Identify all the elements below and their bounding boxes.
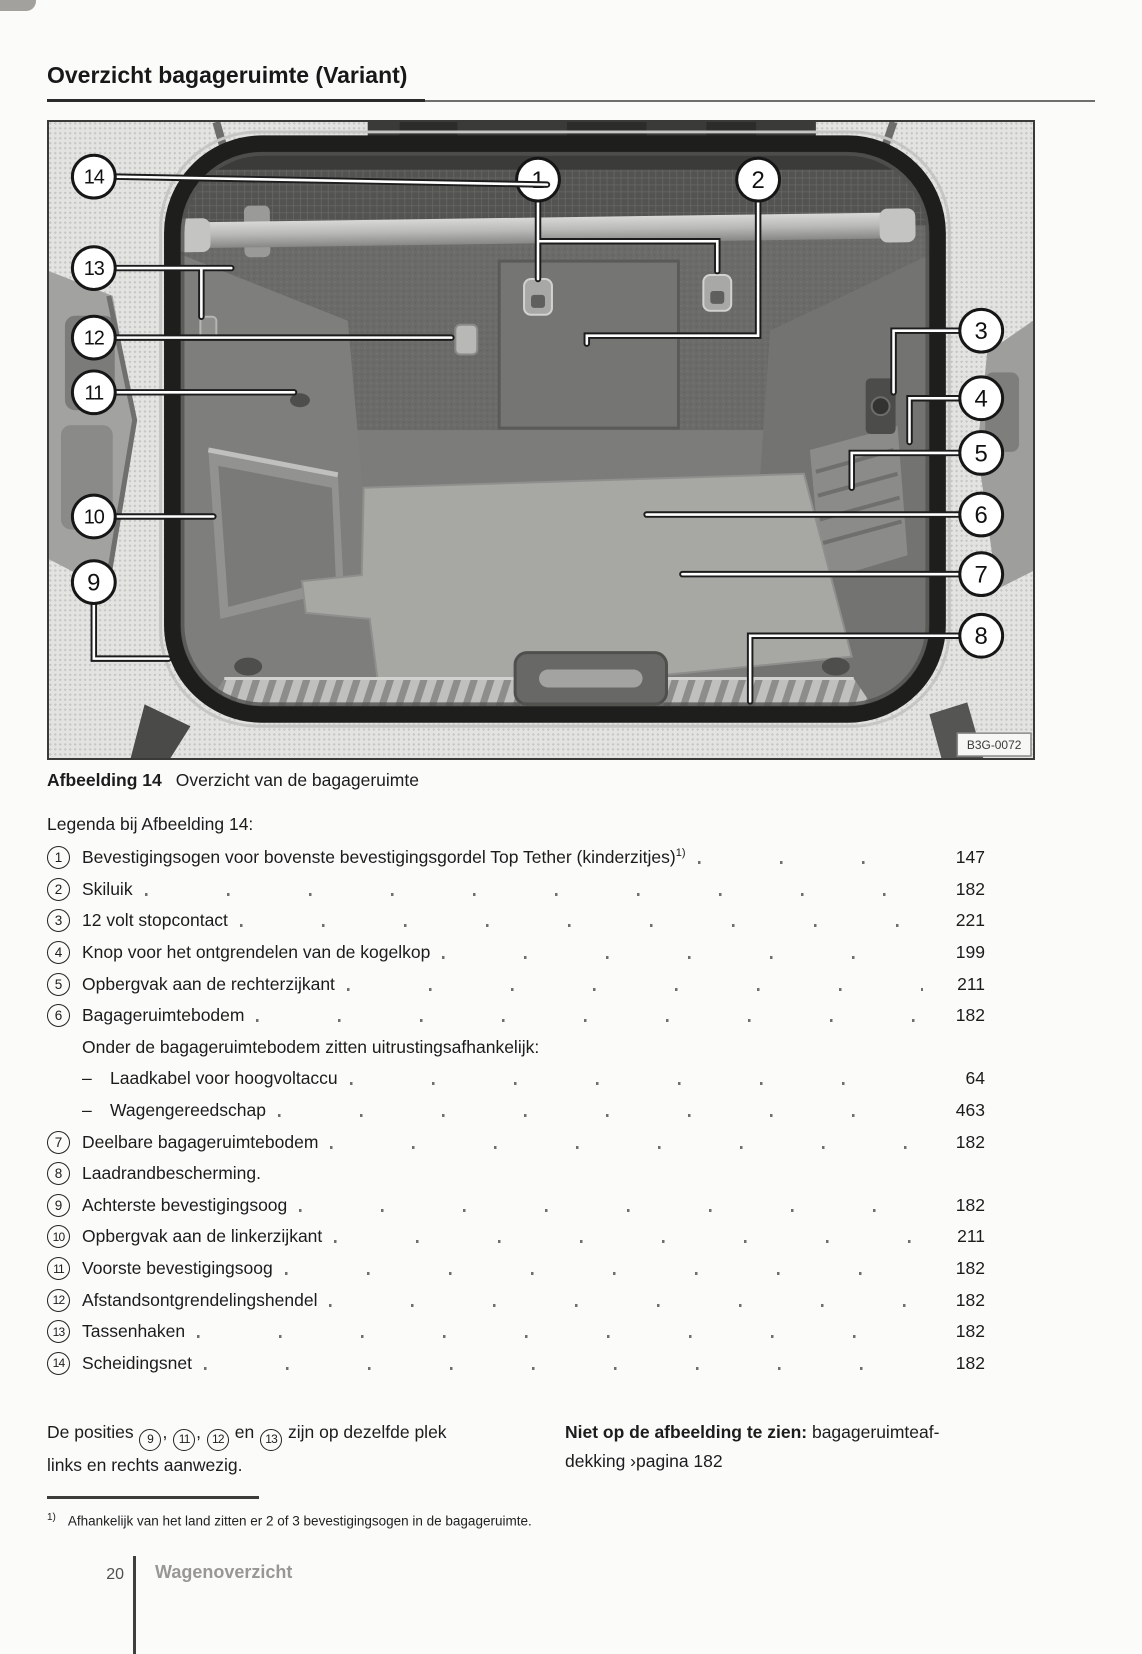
legend-row: 7Deelbare bagageruimtebodem182 [47,1126,985,1158]
legend-dots [329,1304,923,1307]
legend-item-text: Scheidingsnet [82,1353,192,1374]
image-code-label: B3G-0072 [957,733,1031,756]
footer-page-number: 20 [88,1566,124,1584]
svg-text:13: 13 [84,258,105,280]
legend-item-text: Laadrandbescherming. [82,1163,261,1184]
rear-lashing-eye-left [234,658,262,676]
legend-page-number: 211 [937,974,985,995]
circled-number: 14 [47,1352,70,1375]
legend-row: 2Skiluik182 [47,874,985,906]
circled-number: 7 [47,1131,70,1154]
legend-page-number: 182 [937,1132,985,1153]
legend-row: 9Achterste bevestigingsoog182 [47,1190,985,1222]
tailgate-handle-recess [515,653,666,705]
legend-row: 10Opbergvak aan de linkerzijkant211 [47,1221,985,1253]
legend-item-text: Bagageruimtebodem [82,1005,244,1026]
image-code-text: B3G-0072 [967,738,1022,752]
legend-row: 8Laadrandbescherming. [47,1158,985,1190]
legend-item-text: Wagengereedschap [110,1100,266,1121]
circled-number: 10 [47,1225,70,1248]
legend-page-number: 182 [937,1005,985,1026]
scan-artifact [0,0,36,11]
footnote-rule [47,1496,259,1499]
figure-frame: B3G-0072 1234567891011121314 [47,120,1035,760]
legend-dots [256,1019,923,1022]
circled-number: 13 [47,1320,70,1343]
legend-list: 1Bevestigingsogen voor bovenste bevestig… [47,842,985,1379]
legend-dots [240,924,923,927]
legend-item-text: Afstandsontgrendelingshendel [82,1290,317,1311]
note-left: De posities 9, 11, 12 en 13 zijn op deze… [47,1418,547,1480]
legend-dots [299,1209,923,1212]
legend-page-number: 182 [937,1195,985,1216]
trunk-illustration: B3G-0072 1234567891011121314 [49,122,1033,758]
remote-release-lever [455,325,477,355]
circled-number: 12 [207,1429,229,1451]
circled-number: 6 [47,1004,70,1027]
svg-text:4: 4 [975,386,988,413]
legend-page-number: 182 [937,1290,985,1311]
footer-divider [133,1556,136,1654]
legend-page-number: 182 [937,1321,985,1342]
note-right-bold: Niet op de afbeelding te zien: [565,1422,807,1442]
dash-bullet: – [82,1100,110,1121]
legend-page-number: 182 [937,879,985,900]
legend-intro: Legenda bij Afbeelding 14: [47,814,253,835]
legend-page-number: 211 [937,1226,985,1247]
legend-row: 5Opbergvak aan de rechterzijkant211 [47,968,985,1000]
note-right-line1: Niet op de afbeelding te zien: bagagerui… [565,1418,1025,1447]
legend-row: –Wagengereedschap463 [47,1095,985,1127]
circled-number: 11 [173,1429,195,1451]
footnote: 1)Afhankelijk van het land zitten er 2 o… [47,1512,847,1529]
legend-item-text: Knop voor het ontgrendelen van de kogelk… [82,942,430,963]
svg-text:6: 6 [975,502,988,529]
svg-text:3: 3 [975,318,988,345]
svg-text:12: 12 [84,328,105,350]
dash-bullet: – [82,1068,110,1089]
trunk-interior [172,144,937,750]
legend-item-text: Tassenhaken [82,1321,185,1342]
legend-row: 12Afstandsontgrendelingshendel182 [47,1284,985,1316]
svg-text:8: 8 [975,623,988,650]
legend-page-number: 64 [937,1068,985,1089]
circled-number: 12 [47,1289,70,1312]
legend-page-number: 221 [937,910,985,931]
legend-dots [350,1082,923,1085]
footnote-text: Afhankelijk van het land zitten er 2 of … [68,1514,532,1529]
svg-text:9: 9 [87,570,100,597]
circled-number: 2 [47,878,70,901]
legend-item-text: Opbergvak aan de rechterzijkant [82,974,335,995]
title-rule-accent [47,99,425,102]
legend-item-text: 12 volt stopcontact [82,910,228,931]
legend-item-text: Achterste bevestigingsoog [82,1195,287,1216]
legend-row: 6Bagageruimtebodem182 [47,1000,985,1032]
legend-item-text: Onder de bagageruimtebodem zitten uitrus… [82,1037,539,1058]
circled-number: 8 [47,1162,70,1185]
legend-row: 13Tassenhaken182 [47,1316,985,1348]
legend-dots [347,988,923,991]
note-right: Niet op de afbeelding te zien: bagagerui… [565,1418,1025,1476]
legend-item-text: Voorste bevestigingsoog [82,1258,273,1279]
circled-number: 5 [47,973,70,996]
legend-row: 14Scheidingsnet182 [47,1348,985,1380]
legend-row: 4Knop voor het ontgrendelen van de kogel… [47,937,985,969]
legend-row: 312 volt stopcontact221 [47,905,985,937]
footnote-marker: 1) [47,1512,56,1523]
legend-page-number: 147 [937,847,985,868]
legend-item-text: Deelbare bagageruimtebodem [82,1132,318,1153]
svg-text:10: 10 [84,506,105,528]
legend-item-text: Laadkabel voor hoogvoltaccu [110,1068,338,1089]
svg-text:2: 2 [751,167,764,194]
footer-section-title: Wagenoverzicht [155,1562,292,1583]
note-left-text: De posities 9, 11, 12 en 13 zijn op deze… [47,1422,447,1475]
rear-lashing-eye-right [822,658,850,676]
circled-number: 4 [47,941,70,964]
legend-dots [442,956,923,959]
footnote-reference: 1) [676,847,686,859]
circled-number: 9 [139,1429,161,1451]
caption-label: Afbeelding 14 [47,770,162,790]
legend-dots [204,1367,923,1370]
legend-dots [197,1335,923,1338]
legend-item-text: Opbergvak aan de linkerzijkant [82,1226,322,1247]
svg-text:11: 11 [84,382,104,404]
svg-text:7: 7 [975,562,988,589]
legend-dots [334,1240,923,1243]
circled-number: 9 [47,1194,70,1217]
legend-item-text: Bevestigingsogen voor bovenste bevestigi… [82,847,686,868]
circled-number: 1 [47,846,70,869]
svg-text:5: 5 [975,440,988,467]
legend-dots [285,1272,923,1275]
note-right-rest: bagageruimteaf- [807,1422,939,1442]
svg-text:14: 14 [84,167,105,189]
legend-dots [145,893,923,896]
legend-page-number: 463 [937,1100,985,1121]
top-tether-anchor-left [524,279,552,315]
legend-row: Onder de bagageruimtebodem zitten uitrus… [47,1032,985,1064]
svg-text:1: 1 [531,167,544,194]
circled-number: 3 [47,909,70,932]
top-tether-anchor-right [703,275,731,311]
legend-row: 11Voorste bevestigingsoog182 [47,1253,985,1285]
caption-text: Overzicht van de bagageruimte [176,770,419,790]
circled-number: 11 [47,1257,70,1280]
legend-page-number: 199 [937,942,985,963]
circled-number: 13 [260,1429,282,1451]
legend-row: 1Bevestigingsogen voor bovenste bevestig… [47,842,985,874]
figure-caption: Afbeelding 14Overzicht van de bagageruim… [47,770,419,791]
legend-dots [698,861,923,864]
legend-page-number: 182 [937,1258,985,1279]
legend-dots [330,1146,923,1149]
page-title: Overzicht bagageruimte (Variant) [47,62,407,89]
legend-dots [278,1114,923,1117]
legend-item-text: Skiluik [82,879,133,900]
legend-row: –Laadkabel voor hoogvoltaccu64 [47,1063,985,1095]
legend-page-number: 182 [937,1353,985,1374]
note-right-line2: dekking ›pagina 182 [565,1447,1025,1476]
